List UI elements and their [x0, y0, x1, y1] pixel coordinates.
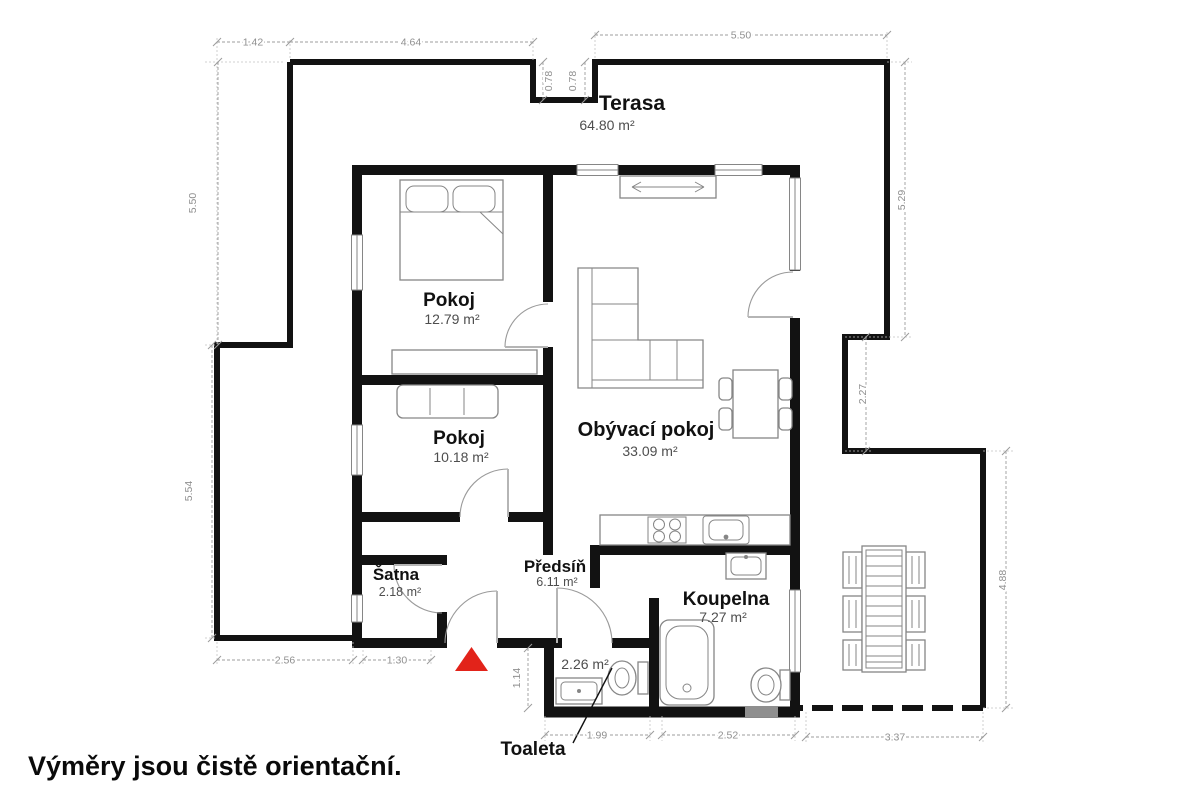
area-terasa: 64.80 m² [579, 117, 635, 133]
door-entrance [445, 591, 497, 643]
label-terasa: Terasa [599, 92, 665, 115]
dim-bottom-terrace-left: 2.56 [275, 655, 296, 667]
floor-plan: Terasa 64.80 m² Pokoj 12.79 m² Obývací p… [0, 0, 1199, 799]
terrace-wall-left [217, 62, 352, 638]
toilet-wc-icon [608, 661, 648, 695]
bath-wc-icon [751, 668, 790, 702]
dim-right-middle: 2.27 [857, 384, 869, 405]
door-pokoj2 [460, 469, 508, 517]
dim-bottom-toaleta: 1.99 [587, 730, 608, 742]
kitchen-counter [600, 515, 790, 545]
dim-bottom-terrace-right: 3.37 [885, 732, 906, 744]
dim-top-left: 4.64 [401, 37, 422, 49]
dim-notch-left: 0.78 [543, 71, 555, 92]
dining-set [719, 370, 792, 438]
area-satna: 2.18 m² [379, 585, 421, 599]
area-koupelna: 7.27 m² [699, 609, 747, 625]
window-living-north-right [715, 165, 762, 176]
area-predsin: 6.11 m² [536, 575, 577, 589]
entrance-arrow [455, 647, 488, 671]
sofa-small [397, 385, 498, 418]
window-pokoj2 [352, 425, 363, 475]
label-pokoj2: Pokoj [433, 428, 485, 449]
window-koupelna-east [790, 590, 801, 672]
outdoor-dining-set [843, 546, 925, 672]
dim-notch-right: 0.78 [567, 71, 579, 92]
window-pokoj1 [352, 235, 363, 290]
window-living-east [790, 178, 801, 270]
label-satna: Šatna [373, 565, 420, 584]
label-koupelna: Koupelna [683, 589, 770, 610]
area-pokoj1: 12.79 m² [424, 311, 480, 327]
dim-toilet-depth: 1.14 [511, 668, 523, 689]
label-obyvaci-pokoj: Obývací pokoj [578, 419, 715, 441]
dim-top-right: 5.50 [731, 30, 752, 42]
window-koupelna-south [745, 706, 778, 717]
area-toaleta: 2.26 m² [561, 656, 609, 672]
corner-sofa [578, 268, 703, 388]
door-pokoj1 [505, 304, 548, 347]
door-koupelna [557, 588, 612, 643]
dim-bottom-satna: 1.30 [387, 655, 408, 667]
area-pokoj2: 10.18 m² [433, 449, 489, 465]
dim-right-lower: 4.88 [997, 570, 1009, 591]
bath-sink-icon [726, 553, 766, 579]
dim-right-upper: 5.29 [896, 190, 908, 211]
disclaimer-text: Výměry jsou čistě orientační. [28, 751, 402, 781]
bed [400, 180, 503, 280]
window-living-north-left [577, 165, 618, 176]
window-satna [352, 595, 363, 622]
bathtub [660, 620, 714, 705]
dim-left-upper: 5.50 [187, 193, 199, 214]
label-pokoj1: Pokoj [423, 290, 475, 311]
sideboard [392, 350, 537, 374]
door-sliding-terrace [620, 176, 716, 198]
door-terrace-east [748, 272, 793, 317]
terrace-door-gap [789, 271, 801, 318]
dim-bottom-koupelna: 2.52 [718, 730, 739, 742]
dim-top-left-offset: 1.42 [243, 37, 264, 49]
area-obyvaci-pokoj: 33.09 m² [622, 443, 678, 459]
label-toaleta: Toaleta [500, 739, 566, 760]
dim-left-lower: 5.54 [183, 481, 195, 502]
label-predsin: Předsíň [524, 557, 586, 576]
